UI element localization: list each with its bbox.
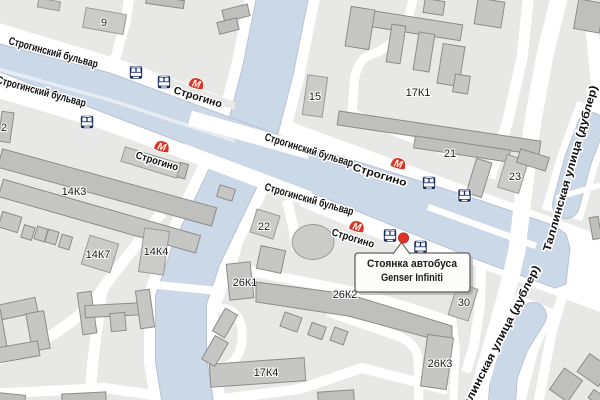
svg-text:30: 30: [458, 297, 470, 309]
svg-text:Genser Infiniti: Genser Infiniti: [381, 272, 443, 284]
svg-text:14К3: 14К3: [62, 186, 87, 198]
svg-text:26К2: 26К2: [333, 289, 358, 301]
svg-text:9: 9: [101, 17, 107, 29]
svg-text:23: 23: [509, 171, 521, 183]
svg-text:22: 22: [258, 221, 270, 233]
svg-text:17К1: 17К1: [406, 87, 431, 99]
svg-text:21: 21: [444, 148, 456, 160]
svg-text:26К3: 26К3: [428, 358, 453, 370]
svg-text:15: 15: [309, 91, 321, 103]
svg-text:17К4: 17К4: [254, 367, 279, 379]
svg-text:2: 2: [1, 122, 7, 134]
svg-text:14К7: 14К7: [86, 249, 111, 261]
svg-text:14К4: 14К4: [144, 246, 169, 258]
svg-text:Стоянка автобуса: Стоянка автобуса: [367, 258, 458, 270]
svg-text:26К1: 26К1: [233, 277, 258, 289]
